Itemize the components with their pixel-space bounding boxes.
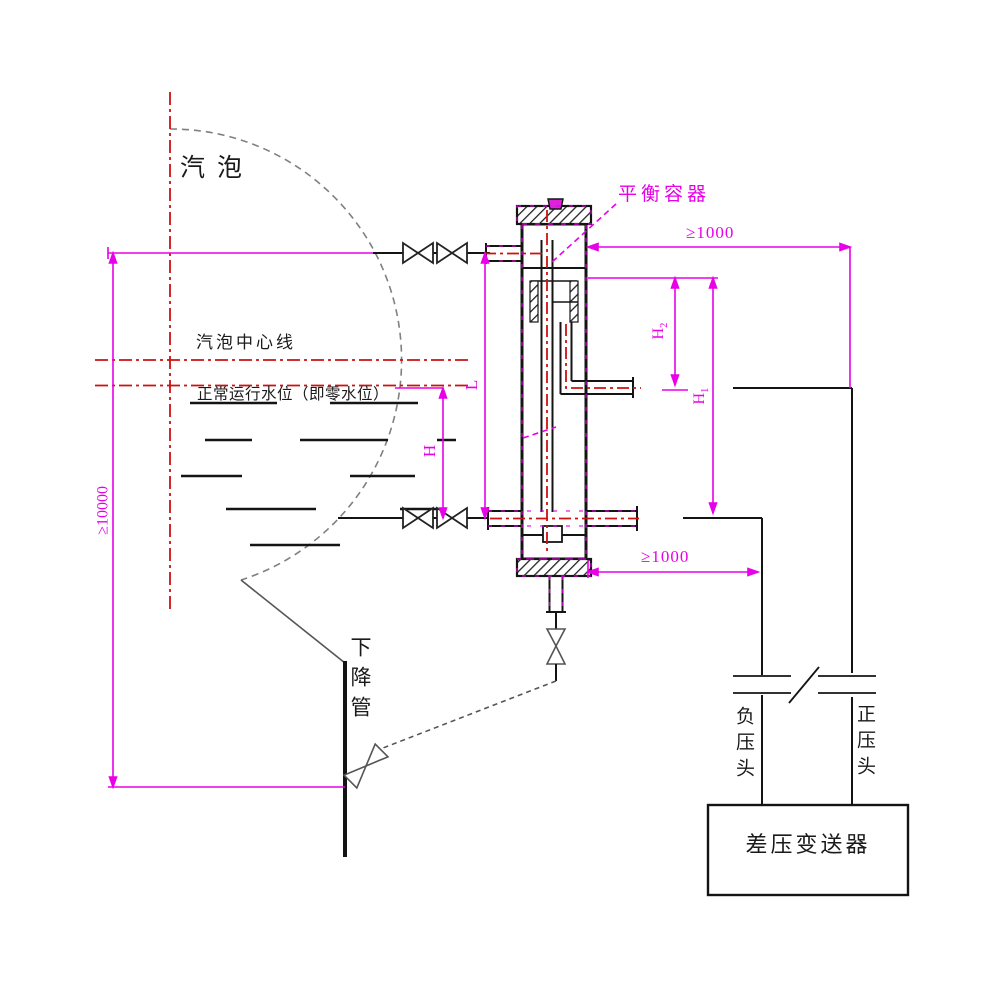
dimension-lines: [108, 204, 850, 787]
normal-water-level-label: 正常运行水位（即零水位）: [197, 387, 389, 403]
downcomer-label: 下降管: [349, 636, 371, 726]
positive-pressure-head-label: 正压头: [854, 704, 874, 782]
drum-centerline-label: 汽泡中心线: [196, 334, 296, 352]
dimension-H2: H2: [651, 301, 671, 361]
water-surface-marks: [181, 403, 456, 545]
steam-connection-pipe: [373, 243, 490, 263]
balance-vessel-body: [486, 199, 633, 612]
drain-line: [344, 612, 565, 788]
valve-icon: [344, 744, 388, 788]
dimension-H: H: [421, 431, 439, 471]
dimension-left-vertical: ≥10000: [96, 460, 113, 560]
dimension-H1: H1: [692, 366, 712, 426]
valve-icon: [547, 629, 565, 664]
steam-drum-label: 汽泡: [180, 156, 254, 182]
dimension-bottom-right: ≥1000: [641, 548, 689, 566]
balance-vessel-label: 平衡容器: [618, 185, 710, 205]
dimension-L: L: [463, 365, 481, 405]
dp-transmitter-label: 差压变送器: [708, 833, 908, 856]
negative-pressure-head-label: 负压头: [733, 706, 753, 784]
vent-plug: [548, 199, 563, 209]
pipe-break-icon: [733, 667, 876, 703]
dimension-top-right: ≥1000: [686, 224, 734, 242]
